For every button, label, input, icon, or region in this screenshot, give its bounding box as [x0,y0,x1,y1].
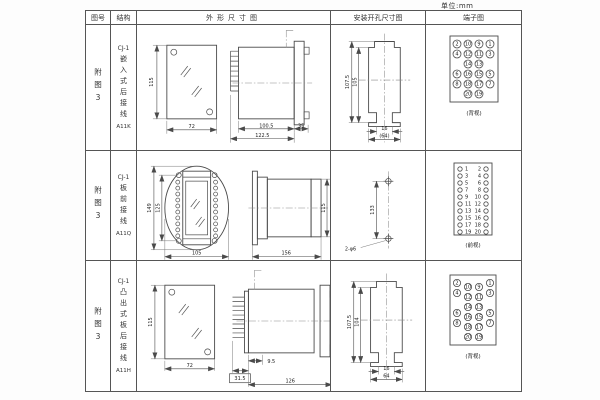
svg-text:4: 4 [455,290,458,296]
svg-text:18: 18 [465,324,471,330]
svg-text:13: 13 [476,61,482,67]
svg-text:5: 5 [488,71,491,77]
dim-mount-overall: (64) [379,133,389,139]
svg-text:17: 17 [476,324,482,330]
svg-text:9: 9 [477,41,480,47]
header-terminal-diagram: 端子图 [426,11,521,25]
svg-text:15: 15 [476,314,482,320]
terminal-view-label: (背视) [465,352,480,360]
dim-side-height: 115 [321,203,327,212]
structure-desc: 板前接线 [119,184,129,228]
dim-mount-height-inner: 104 [355,317,361,326]
outline-drawing-row1: 115 72 100.5 35 122.5 [137,25,330,151]
mounting-drawing-row3: 107.5 104 16 64 [331,261,425,391]
terminal-view-label: (背视) [466,109,481,117]
svg-text:9: 9 [477,284,480,290]
svg-text:10: 10 [475,194,481,200]
svg-text:10: 10 [465,41,471,47]
svg-text:15: 15 [465,215,471,221]
dim-front-height: 115 [148,317,154,326]
svg-text:6: 6 [455,310,458,316]
structure-row2: CJ-1 板前接线 A11Q [111,151,137,261]
terminal-cell-row1: 2109141211314136161558181772019 (背视) [426,25,521,151]
svg-text:14: 14 [465,61,471,67]
dim-side-depth: 31.5 [234,376,245,382]
structure-code: A11K [116,124,130,130]
dim-mount-height-inner: 105 [353,77,359,86]
figure-no-text: 附图3 [93,186,104,225]
svg-text:6: 6 [455,71,458,77]
svg-text:15: 15 [476,71,482,77]
structure-model: CJ-1 [118,278,130,285]
dim-front-height-outer: 149 [147,203,153,212]
dim-front-height: 115 [149,77,155,86]
structure-row1: CJ-1 嵌入式后接线 A11K [111,25,137,151]
terminal-cell-row2: 1357911131517192468101214161820 (前视) [426,151,521,261]
svg-text:3: 3 [488,290,491,296]
svg-text:14: 14 [475,208,481,214]
svg-text:16: 16 [475,215,481,221]
dim-mount-height-outer: 107.5 [345,74,351,88]
terminal-drawing-row2: 1357911131517192468101214161820 (前视) [426,151,521,261]
mounting-cell-row1: 107.5 105 16 (64) [331,25,426,151]
terminal-cell-row3: 2109141211314136161558181772019 (背视) [426,261,521,391]
dim-mount-overall: 64 [383,373,389,379]
outline-drawing-row3: 115 72 9.5 31.5 126 [137,261,330,391]
terminal-view-label: (前视) [465,241,480,249]
dim-side-overall: 122.5 [255,133,269,139]
svg-text:13: 13 [465,208,471,214]
spec-table: 图号 结构 外形尺寸图 安装开孔尺寸图 端子图 附图3 CJ-1 嵌入式后接线 … [85,10,522,392]
dim-front-width: 72 [189,123,195,129]
svg-text:12: 12 [465,294,471,300]
svg-text:20: 20 [465,334,471,340]
svg-text:20: 20 [465,91,471,97]
svg-text:6: 6 [478,180,481,186]
outline-drawing-row2: 149 125 105 115 156 [137,151,330,261]
figure-no-row3: 附图3 [86,261,111,391]
svg-text:7: 7 [465,187,468,193]
svg-text:4: 4 [455,51,458,57]
dim-side-pitch: 9.5 [267,359,275,365]
svg-text:11: 11 [465,201,471,207]
svg-text:4: 4 [478,173,481,179]
structure-desc: 嵌入式后接线 [119,55,129,121]
svg-text:2: 2 [455,41,458,47]
svg-text:8: 8 [455,320,458,326]
dim-mount-slot: 16 [383,366,389,372]
svg-text:20: 20 [475,229,481,235]
svg-text:1: 1 [465,166,468,172]
figure-no-text: 附图3 [93,307,104,346]
svg-text:18: 18 [465,81,471,87]
structure-model: CJ-1 [118,45,130,52]
svg-text:19: 19 [465,229,471,235]
svg-text:17: 17 [476,81,482,87]
header-outline-dims: 外形尺寸图 [137,11,331,25]
structure-code: A11Q [116,231,131,237]
dim-front-height-inner: 125 [155,203,161,212]
svg-text:7: 7 [488,81,491,87]
svg-text:9: 9 [465,194,468,200]
mounting-cell-row2: 133 2-φ6 [331,151,426,261]
svg-text:1: 1 [488,41,491,47]
svg-text:17: 17 [465,222,471,228]
dim-side-flange: 35 [298,123,304,129]
svg-text:8: 8 [478,187,481,193]
svg-text:5: 5 [488,310,491,316]
svg-text:19: 19 [476,334,482,340]
svg-text:11: 11 [476,51,482,57]
svg-text:2: 2 [455,280,458,286]
structure-row3: CJ-1 凸出式板后接线 A11H [111,261,137,391]
figure-no-row1: 附图3 [86,25,111,151]
header-structure: 结构 [111,11,137,25]
svg-text:12: 12 [475,201,481,207]
figure-no-text: 附图3 [93,68,104,107]
svg-text:11: 11 [476,294,482,300]
svg-text:16: 16 [465,71,471,77]
dim-front-width: 72 [187,363,193,369]
svg-text:18: 18 [475,222,481,228]
header-mounting-dims: 安装开孔尺寸图 [331,11,426,25]
svg-text:14: 14 [465,304,471,310]
outline-cell-row3: 115 72 9.5 31.5 126 [137,261,331,391]
structure-code: A11H [116,368,131,374]
dim-side-length: 156 [281,250,290,256]
structure-desc: 凸出式板后接线 [119,288,129,365]
dim-side-body: 100.5 [259,123,273,129]
svg-text:12: 12 [465,51,471,57]
mounting-drawing-row1: 107.5 105 16 (64) [331,25,425,151]
svg-text:13: 13 [476,304,482,310]
outline-cell-row2: 149 125 105 115 156 [137,151,331,261]
figure-no-row2: 附图3 [86,151,111,261]
svg-text:1: 1 [488,280,491,286]
dim-mount-slot: 16 [381,126,387,132]
svg-text:3: 3 [488,51,491,57]
dim-side-length: 126 [285,379,294,385]
dim-front-width: 105 [192,250,201,256]
structure-model: CJ-1 [118,174,130,181]
holes-label: 2-φ6 [345,246,356,252]
dim-hole-distance: 133 [370,205,376,214]
mounting-cell-row3: 107.5 104 16 64 [331,261,426,391]
terminal-drawing-row1: 2109141211314136161558181772019 (背视) [426,25,521,151]
svg-text:8: 8 [455,81,458,87]
svg-text:2: 2 [478,166,481,172]
terminal-drawing-row3: 2109141211314136161558181772019 (背视) [426,261,521,391]
svg-text:3: 3 [465,173,468,179]
outline-cell-row1: 115 72 100.5 35 122.5 [137,25,331,151]
mounting-drawing-row2: 133 2-φ6 [331,151,425,261]
svg-text:19: 19 [476,91,482,97]
svg-text:5: 5 [465,180,468,186]
header-figure-no: 图号 [86,11,111,25]
svg-text:16: 16 [465,314,471,320]
dim-mount-height-outer: 107.5 [347,315,353,329]
svg-text:10: 10 [465,284,471,290]
svg-text:7: 7 [488,320,491,326]
